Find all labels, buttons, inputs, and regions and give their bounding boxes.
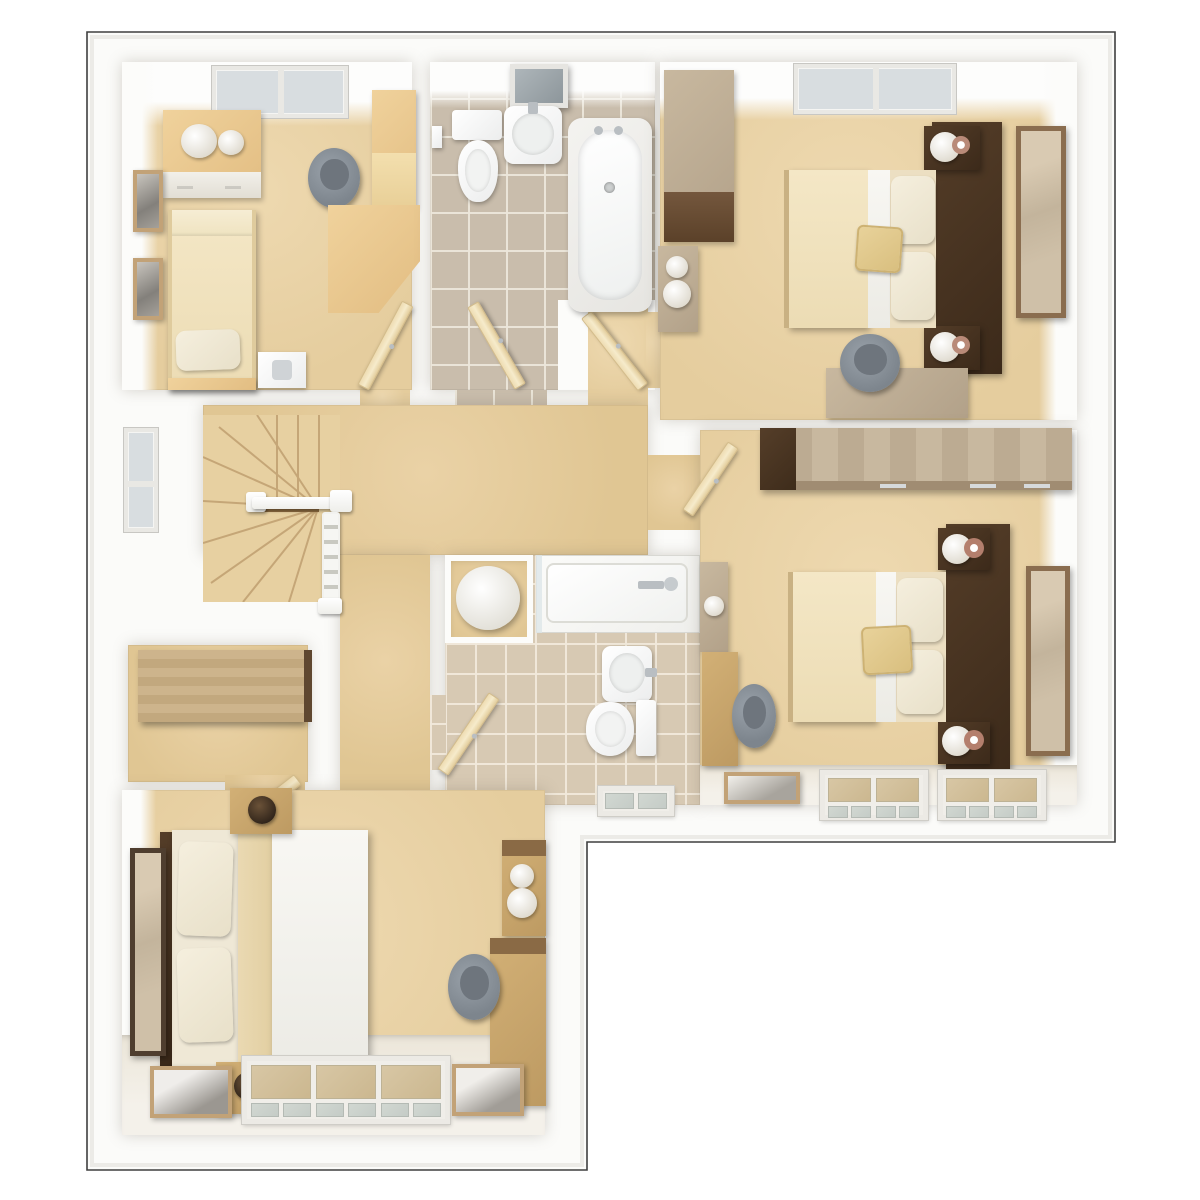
ensuite-window bbox=[598, 786, 674, 816]
basin-tap bbox=[645, 668, 657, 677]
table-lamp bbox=[218, 130, 244, 155]
dresser-lamp bbox=[666, 256, 688, 278]
bed-pillow bbox=[176, 841, 233, 937]
ensuite-basin bbox=[602, 646, 652, 702]
toilet-roll-holder bbox=[432, 126, 442, 148]
bathroom-basin bbox=[504, 106, 562, 164]
wall-mirror bbox=[1016, 126, 1066, 318]
desk-chair bbox=[732, 684, 776, 748]
wardrobe bbox=[664, 70, 734, 242]
bedroom-bottom-left-window bbox=[242, 1056, 450, 1124]
gold-cushion bbox=[854, 224, 903, 273]
dresser-lamp bbox=[510, 864, 534, 888]
bathtub bbox=[568, 118, 652, 312]
doorway-bedroom-top-left bbox=[360, 390, 410, 406]
tall-cabinet bbox=[372, 90, 416, 208]
tall-wall-mirror bbox=[130, 848, 166, 1056]
toilet-bowl bbox=[458, 140, 498, 202]
landing-corridor bbox=[340, 555, 430, 790]
bedroom-middle-right-window bbox=[938, 770, 1046, 820]
landing-side-window bbox=[124, 428, 158, 532]
bedside-lamp bbox=[248, 796, 276, 824]
doorway-bathroom bbox=[455, 390, 547, 406]
lamp-flower bbox=[964, 730, 984, 750]
shower-enclosure bbox=[536, 555, 700, 633]
hot-water-cylinder bbox=[456, 566, 520, 630]
bath-tap bbox=[594, 126, 603, 135]
table-lamp bbox=[181, 124, 217, 158]
dresser-bowl bbox=[663, 280, 691, 308]
floor-picture-frame bbox=[452, 1064, 524, 1116]
shower-glass bbox=[536, 555, 542, 633]
bedroom-top-right-window bbox=[794, 64, 956, 114]
bath-drain bbox=[604, 182, 615, 193]
ensuite-toilet-bowl bbox=[586, 702, 634, 756]
toilet-cistern bbox=[452, 110, 502, 140]
bedside-table bbox=[258, 352, 306, 388]
bathroom-mirror bbox=[510, 64, 568, 108]
basin-tap bbox=[528, 102, 538, 114]
floor-picture-frame bbox=[150, 1066, 232, 1118]
desk-chair bbox=[308, 148, 360, 208]
desk-chair bbox=[840, 334, 900, 392]
bed-headboard bbox=[168, 378, 256, 390]
dresser-bowl bbox=[507, 888, 537, 918]
bed-pillow bbox=[176, 947, 233, 1043]
cupboard-worktop bbox=[138, 650, 304, 722]
bed-fold bbox=[238, 830, 272, 1068]
fitted-wardrobe bbox=[760, 428, 1072, 490]
wall-mirror bbox=[1026, 566, 1070, 756]
lamp-flower bbox=[964, 538, 984, 558]
bedroom-middle-right-window bbox=[820, 770, 928, 820]
wall-art-frame bbox=[133, 258, 163, 320]
balustrade-spindles bbox=[322, 512, 340, 602]
shower-head bbox=[664, 577, 678, 591]
cabinet-lamp bbox=[704, 596, 724, 616]
desk-chair bbox=[448, 954, 500, 1020]
lamp-flower bbox=[952, 136, 970, 154]
newel-post bbox=[330, 490, 352, 512]
gold-cushion bbox=[861, 625, 913, 676]
wall-art-frame bbox=[133, 170, 163, 232]
ensuite-toilet-cistern bbox=[636, 700, 656, 756]
double-bed-duvet bbox=[272, 830, 368, 1068]
floor-picture-frame bbox=[724, 772, 800, 804]
floorplan-canvas: 3D top-down floor plan render — upper fl… bbox=[0, 0, 1200, 1200]
shower-fitting bbox=[638, 581, 664, 589]
bath-tap bbox=[614, 126, 623, 135]
lamp-flower bbox=[952, 336, 970, 354]
balustrade-rail bbox=[252, 497, 340, 509]
newel-post bbox=[318, 598, 342, 614]
chest-of-drawers bbox=[163, 110, 261, 198]
bed-pillow bbox=[175, 329, 240, 371]
